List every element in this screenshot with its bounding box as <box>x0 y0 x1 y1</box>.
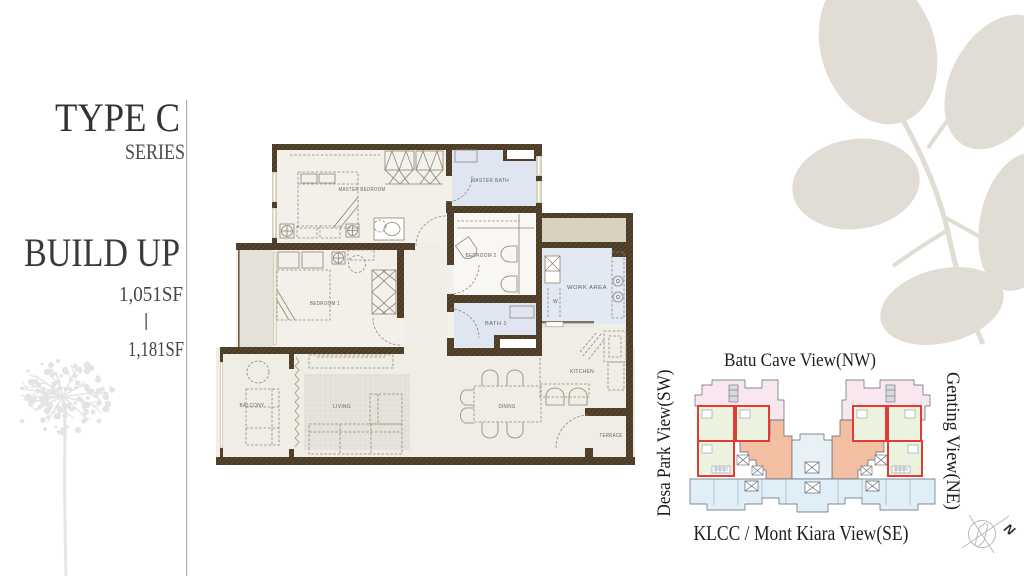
svg-text:1,051SF: 1,051SF <box>119 282 183 306</box>
svg-text:TERRACE: TERRACE <box>600 433 623 439</box>
svg-text:TYPE C: TYPE C <box>55 95 180 140</box>
svg-text:1,181SF: 1,181SF <box>128 337 184 361</box>
svg-text:MASTER BEDROOM: MASTER BEDROOM <box>339 187 386 193</box>
svg-text:BALCONY: BALCONY <box>240 403 265 409</box>
svg-text:Desa Park View(SW): Desa Park View(SW) <box>654 370 675 517</box>
svg-text:LIVING: LIVING <box>333 404 351 410</box>
svg-text:W: W <box>553 299 558 305</box>
svg-text:BUILD UP: BUILD UP <box>24 230 180 275</box>
svg-text:BATH 1: BATH 1 <box>485 321 507 327</box>
svg-text:KITCHEN: KITCHEN <box>570 369 594 375</box>
svg-text:SERIES: SERIES <box>125 139 185 164</box>
svg-text:Batu Cave View(NW): Batu Cave View(NW) <box>724 350 876 371</box>
svg-text:Genting View(NE): Genting View(NE) <box>942 372 963 510</box>
svg-text:WORK AREA: WORK AREA <box>567 285 607 291</box>
svg-text:BEDROOM 1: BEDROOM 1 <box>310 301 340 307</box>
svg-text:KLCC / Mont Kiara View(SE): KLCC / Mont Kiara View(SE) <box>694 521 909 545</box>
svg-text:BEDROOM 2: BEDROOM 2 <box>466 253 497 259</box>
svg-text:DINING: DINING <box>499 404 516 410</box>
svg-text:MASTER BATH: MASTER BATH <box>471 178 509 184</box>
